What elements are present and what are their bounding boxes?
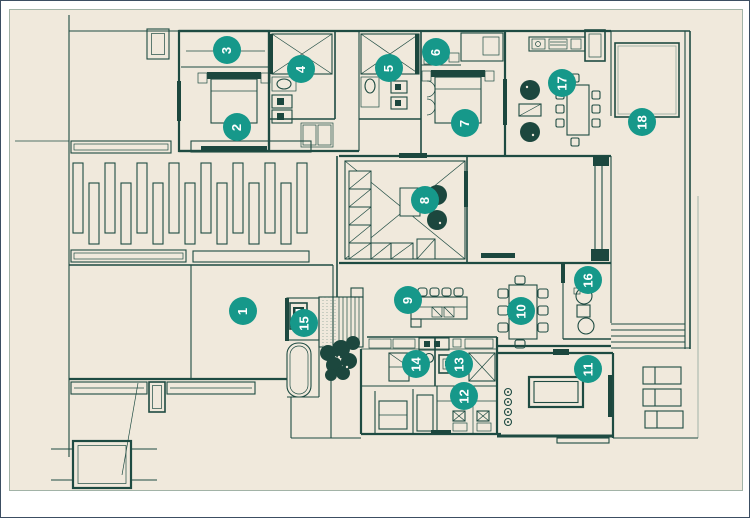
room-marker-3: 3 xyxy=(213,36,241,64)
room-marker-number: 13 xyxy=(453,357,466,371)
room-marker-number: 14 xyxy=(410,357,423,371)
room-marker-number: 10 xyxy=(515,304,528,318)
room-marker-number: 2 xyxy=(230,123,243,130)
room-marker-17: 17 xyxy=(548,69,576,97)
room-marker-13: 13 xyxy=(445,350,473,378)
room-marker-18: 18 xyxy=(628,108,656,136)
room-marker-number: 17 xyxy=(556,76,569,90)
floorplan-linework xyxy=(1,1,750,518)
room-marker-9: 9 xyxy=(394,286,422,314)
floorplan-image: 123456789101112131415161718 xyxy=(0,0,750,518)
room-marker-number: 12 xyxy=(458,389,471,403)
room-marker-8: 8 xyxy=(411,186,439,214)
room-marker-14: 14 xyxy=(402,350,430,378)
room-marker-number: 5 xyxy=(382,64,395,71)
room-marker-number: 7 xyxy=(458,119,471,126)
room-marker-number: 4 xyxy=(294,65,307,72)
room-marker-16: 16 xyxy=(574,266,602,294)
room-marker-12: 12 xyxy=(450,382,478,410)
room-marker-number: 3 xyxy=(220,46,233,53)
room-marker-15: 15 xyxy=(290,309,318,337)
room-marker-number: 8 xyxy=(418,196,431,203)
room-marker-2: 2 xyxy=(223,113,251,141)
room-marker-4: 4 xyxy=(287,55,315,83)
room-marker-number: 11 xyxy=(582,362,595,376)
room-marker-5: 5 xyxy=(375,54,403,82)
room-marker-number: 15 xyxy=(298,316,311,330)
room-marker-10: 10 xyxy=(507,297,535,325)
room-marker-number: 18 xyxy=(636,115,649,129)
room-marker-number: 1 xyxy=(236,307,249,314)
room-marker-number: 16 xyxy=(582,273,595,287)
room-marker-6: 6 xyxy=(422,38,450,66)
room-marker-7: 7 xyxy=(451,109,479,137)
room-marker-number: 6 xyxy=(429,48,442,55)
room-marker-number: 9 xyxy=(401,296,414,303)
room-marker-11: 11 xyxy=(574,355,602,383)
room-marker-1: 1 xyxy=(229,297,257,325)
